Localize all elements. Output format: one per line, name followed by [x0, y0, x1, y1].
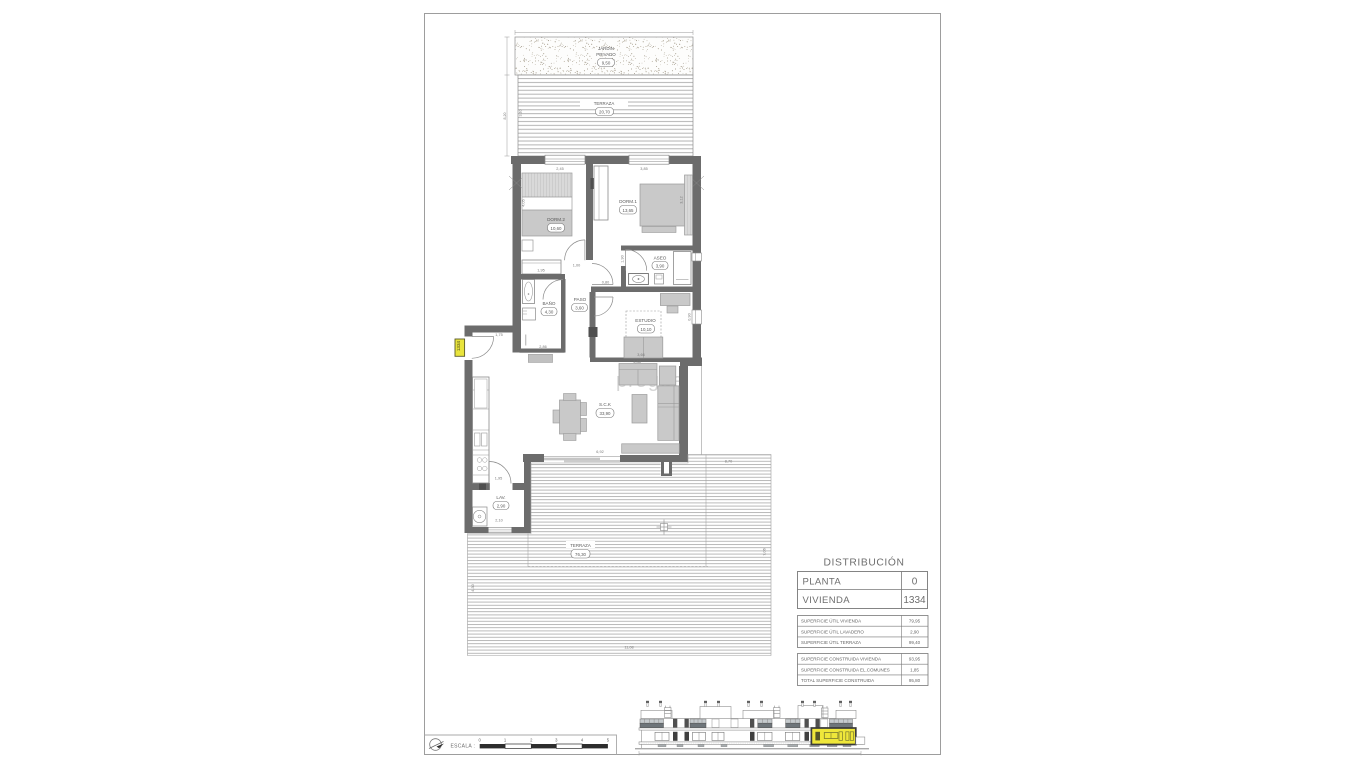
svg-text:20,70: 20,70 — [599, 110, 611, 115]
svg-text:ESCALA :: ESCALA : — [451, 743, 476, 749]
svg-text:PLANTA: PLANTA — [803, 577, 842, 588]
svg-text:TOTAL SUPERFICIE CONSTRUIDA: TOTAL SUPERFICIE CONSTRUIDA — [801, 678, 874, 683]
svg-text:ESTUDIO: ESTUDIO — [635, 318, 656, 323]
svg-text:2,90: 2,90 — [497, 504, 506, 509]
svg-text:SUPERFICIE CONSTRUIDA VIVIENDA: SUPERFICIE CONSTRUIDA VIVIENDA — [801, 657, 881, 662]
svg-text:VIVIENDA: VIVIENDA — [803, 595, 851, 606]
svg-text:SUPERFICIE ÚTIL VIVIENDA: SUPERFICIE ÚTIL VIVIENDA — [801, 618, 861, 624]
svg-text:1,00: 1,00 — [573, 264, 580, 268]
svg-text:PASO: PASO — [574, 297, 587, 302]
svg-text:2,86: 2,86 — [539, 345, 546, 349]
svg-text:4,30: 4,30 — [471, 584, 475, 591]
svg-text:DORM.1: DORM.1 — [619, 199, 637, 204]
svg-text:1,95: 1,95 — [537, 269, 544, 273]
svg-text:8,20: 8,20 — [503, 113, 507, 120]
svg-text:95,80: 95,80 — [909, 678, 921, 683]
svg-text:SUPERFICIE ÚTIL LAVADERO: SUPERFICIE ÚTIL LAVADERO — [801, 628, 864, 634]
svg-text:3,60: 3,60 — [575, 306, 584, 311]
svg-text:SUPERFICIE ÚTIL TERRAZA: SUPERFICIE ÚTIL TERRAZA — [801, 639, 861, 645]
svg-text:8,70: 8,70 — [725, 460, 732, 464]
svg-text:33,90: 33,90 — [600, 411, 612, 416]
svg-text:3,88: 3,88 — [633, 360, 640, 364]
svg-text:1,85: 1,85 — [910, 667, 919, 672]
svg-text:1,90: 1,90 — [621, 255, 625, 262]
svg-text:9,50: 9,50 — [602, 61, 611, 66]
svg-text:2,45: 2,45 — [556, 167, 563, 171]
svg-text:ASEO: ASEO — [654, 256, 667, 261]
svg-text:0,90: 0,90 — [688, 313, 692, 320]
svg-text:3,85: 3,85 — [640, 167, 647, 171]
svg-text:79,95: 79,95 — [909, 619, 921, 624]
svg-text:PRIVADO: PRIVADO — [596, 52, 616, 57]
svg-text:TERRAZA: TERRAZA — [594, 101, 615, 106]
svg-text:1,75: 1,75 — [495, 333, 502, 337]
svg-text:10,10: 10,10 — [641, 327, 653, 332]
svg-text:99,40: 99,40 — [909, 640, 921, 645]
svg-text:3,12: 3,12 — [680, 196, 684, 203]
svg-text:1334: 1334 — [456, 340, 461, 351]
svg-text:2,90: 2,90 — [910, 629, 919, 634]
svg-text:1334: 1334 — [903, 595, 926, 606]
svg-text:3,10: 3,10 — [519, 110, 523, 117]
svg-text:6,92: 6,92 — [596, 450, 603, 454]
svg-text:LAV.: LAV. — [496, 495, 505, 500]
svg-text:7,06: 7,06 — [763, 548, 767, 555]
svg-text:76,30: 76,30 — [575, 552, 587, 557]
svg-text:BAÑO: BAÑO — [542, 300, 555, 306]
svg-text:TERRAZA: TERRAZA — [570, 543, 591, 548]
svg-text:1,95: 1,95 — [495, 477, 502, 481]
svg-text:11,08: 11,08 — [624, 646, 633, 650]
svg-text:13,65: 13,65 — [623, 208, 635, 213]
svg-text:DISTRIBUCIÓN: DISTRIBUCIÓN — [824, 556, 905, 569]
svg-text:93,95: 93,95 — [909, 657, 921, 662]
svg-text:0: 0 — [912, 577, 918, 588]
svg-text:S.C.K: S.C.K — [599, 402, 612, 407]
svg-text:4,05: 4,05 — [522, 199, 526, 206]
svg-text:2,10: 2,10 — [495, 519, 502, 523]
svg-text:3,90: 3,90 — [656, 264, 665, 269]
svg-text:4,30: 4,30 — [545, 310, 554, 315]
svg-text:SUPERFICIE CONSTRUIDA EL.COMUN: SUPERFICIE CONSTRUIDA EL.COMUNES — [801, 667, 890, 672]
svg-text:10,60: 10,60 — [551, 226, 563, 231]
svg-text:DORM.2: DORM.2 — [547, 217, 565, 222]
svg-text:3,66: 3,66 — [637, 353, 644, 357]
svg-text:0,80: 0,80 — [602, 281, 609, 285]
svg-text:JARDIN: JARDIN — [598, 46, 614, 51]
